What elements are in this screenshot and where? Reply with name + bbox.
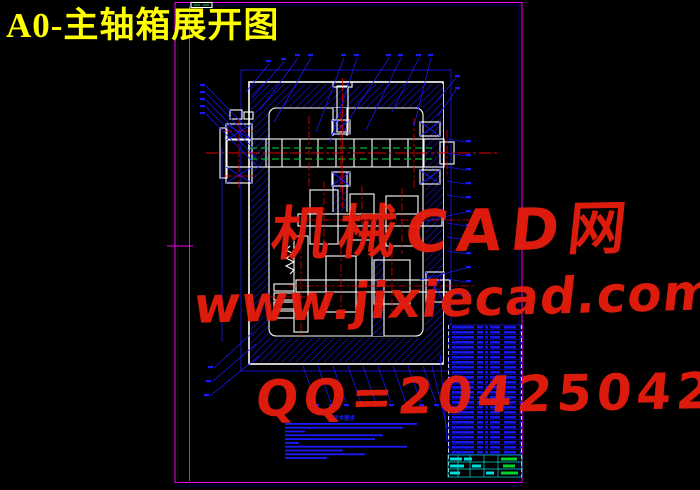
title-block xyxy=(448,455,522,477)
cad-viewport: 技术要求 A0-主轴箱展开图 机械CAD网 www.jixiecad.com Q… xyxy=(0,0,700,490)
left-bearing xyxy=(220,110,253,183)
page-title: A0-主轴箱展开图 xyxy=(6,8,279,45)
watermark-site-name: 机械CAD网 xyxy=(268,181,640,272)
watermark-qq: QQ=20425042 xyxy=(253,362,700,428)
